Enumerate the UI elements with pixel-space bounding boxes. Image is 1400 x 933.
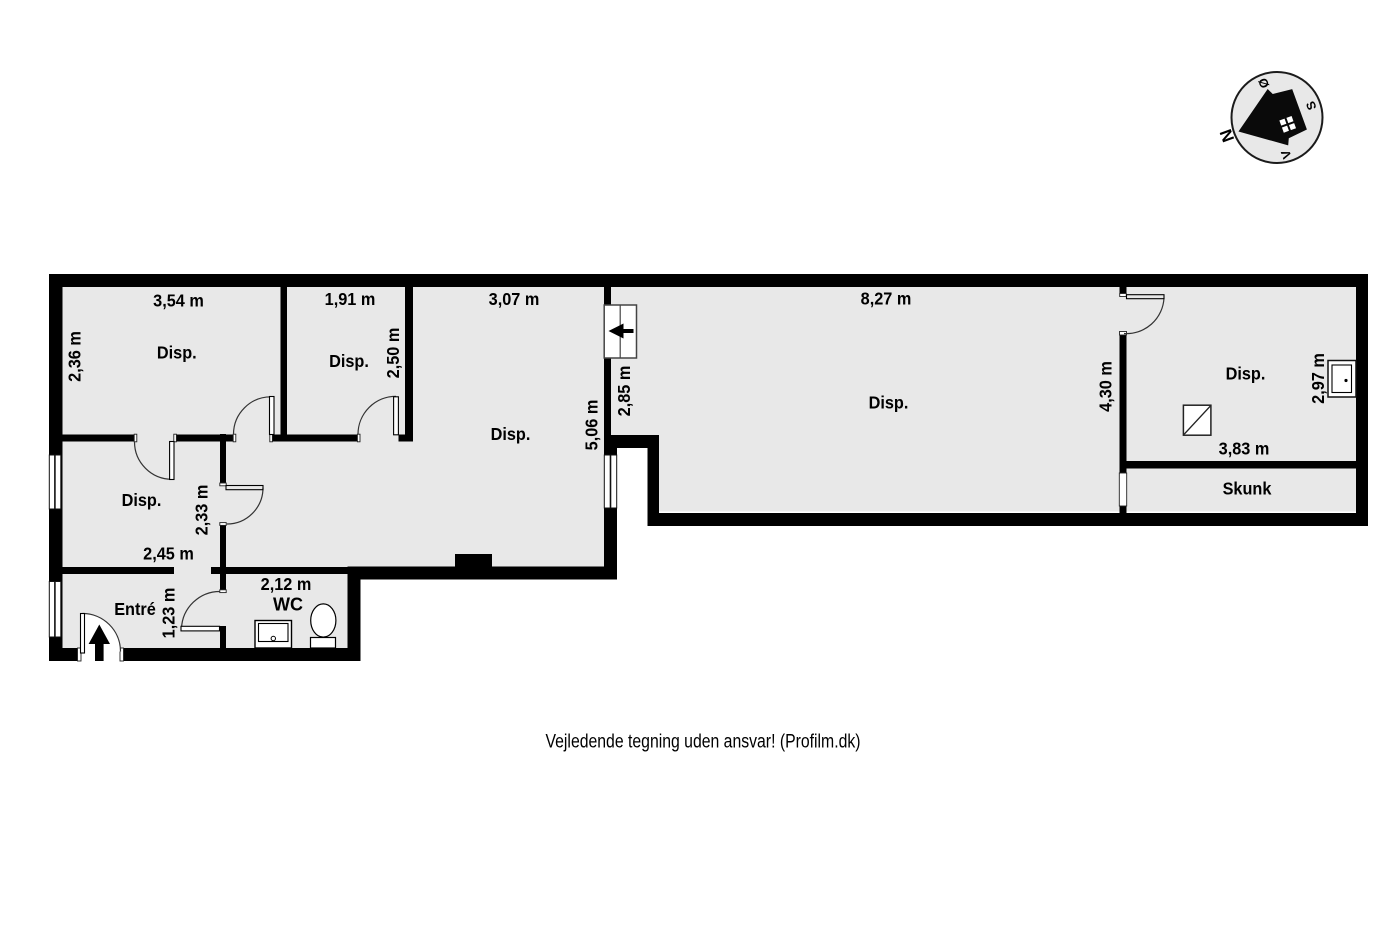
- svg-text:Disp.: Disp.: [869, 392, 909, 413]
- svg-text:Disp.: Disp.: [157, 342, 197, 363]
- svg-text:3,07 m: 3,07 m: [489, 288, 540, 309]
- svg-text:2,45 m: 2,45 m: [143, 543, 194, 564]
- svg-text:Disp.: Disp.: [1226, 363, 1266, 384]
- svg-text:Vejledende tegning uden ansvar: Vejledende tegning uden ansvar! (Profilm…: [545, 730, 860, 752]
- svg-text:Disp.: Disp.: [329, 350, 369, 371]
- svg-text:Disp.: Disp.: [122, 489, 162, 510]
- svg-text:1,91 m: 1,91 m: [325, 288, 376, 309]
- svg-text:1,23 m: 1,23 m: [158, 588, 179, 639]
- svg-text:2,50 m: 2,50 m: [382, 328, 403, 379]
- svg-text:4,30 m: 4,30 m: [1095, 361, 1116, 412]
- svg-text:3,83 m: 3,83 m: [1219, 438, 1270, 459]
- svg-text:Skunk: Skunk: [1223, 478, 1272, 499]
- svg-text:2,33 m: 2,33 m: [191, 485, 212, 536]
- svg-text:WC: WC: [273, 595, 303, 615]
- svg-text:3,54 m: 3,54 m: [153, 290, 204, 311]
- svg-text:8,27 m: 8,27 m: [861, 288, 912, 309]
- svg-text:2,12 m: 2,12 m: [261, 573, 312, 594]
- svg-text:Entré: Entré: [114, 598, 156, 619]
- svg-text:Disp.: Disp.: [491, 423, 531, 444]
- svg-text:2,36 m: 2,36 m: [64, 331, 85, 382]
- svg-text:5,06 m: 5,06 m: [581, 400, 602, 451]
- svg-text:2,85 m: 2,85 m: [613, 366, 634, 417]
- svg-text:2,97 m: 2,97 m: [1307, 353, 1328, 404]
